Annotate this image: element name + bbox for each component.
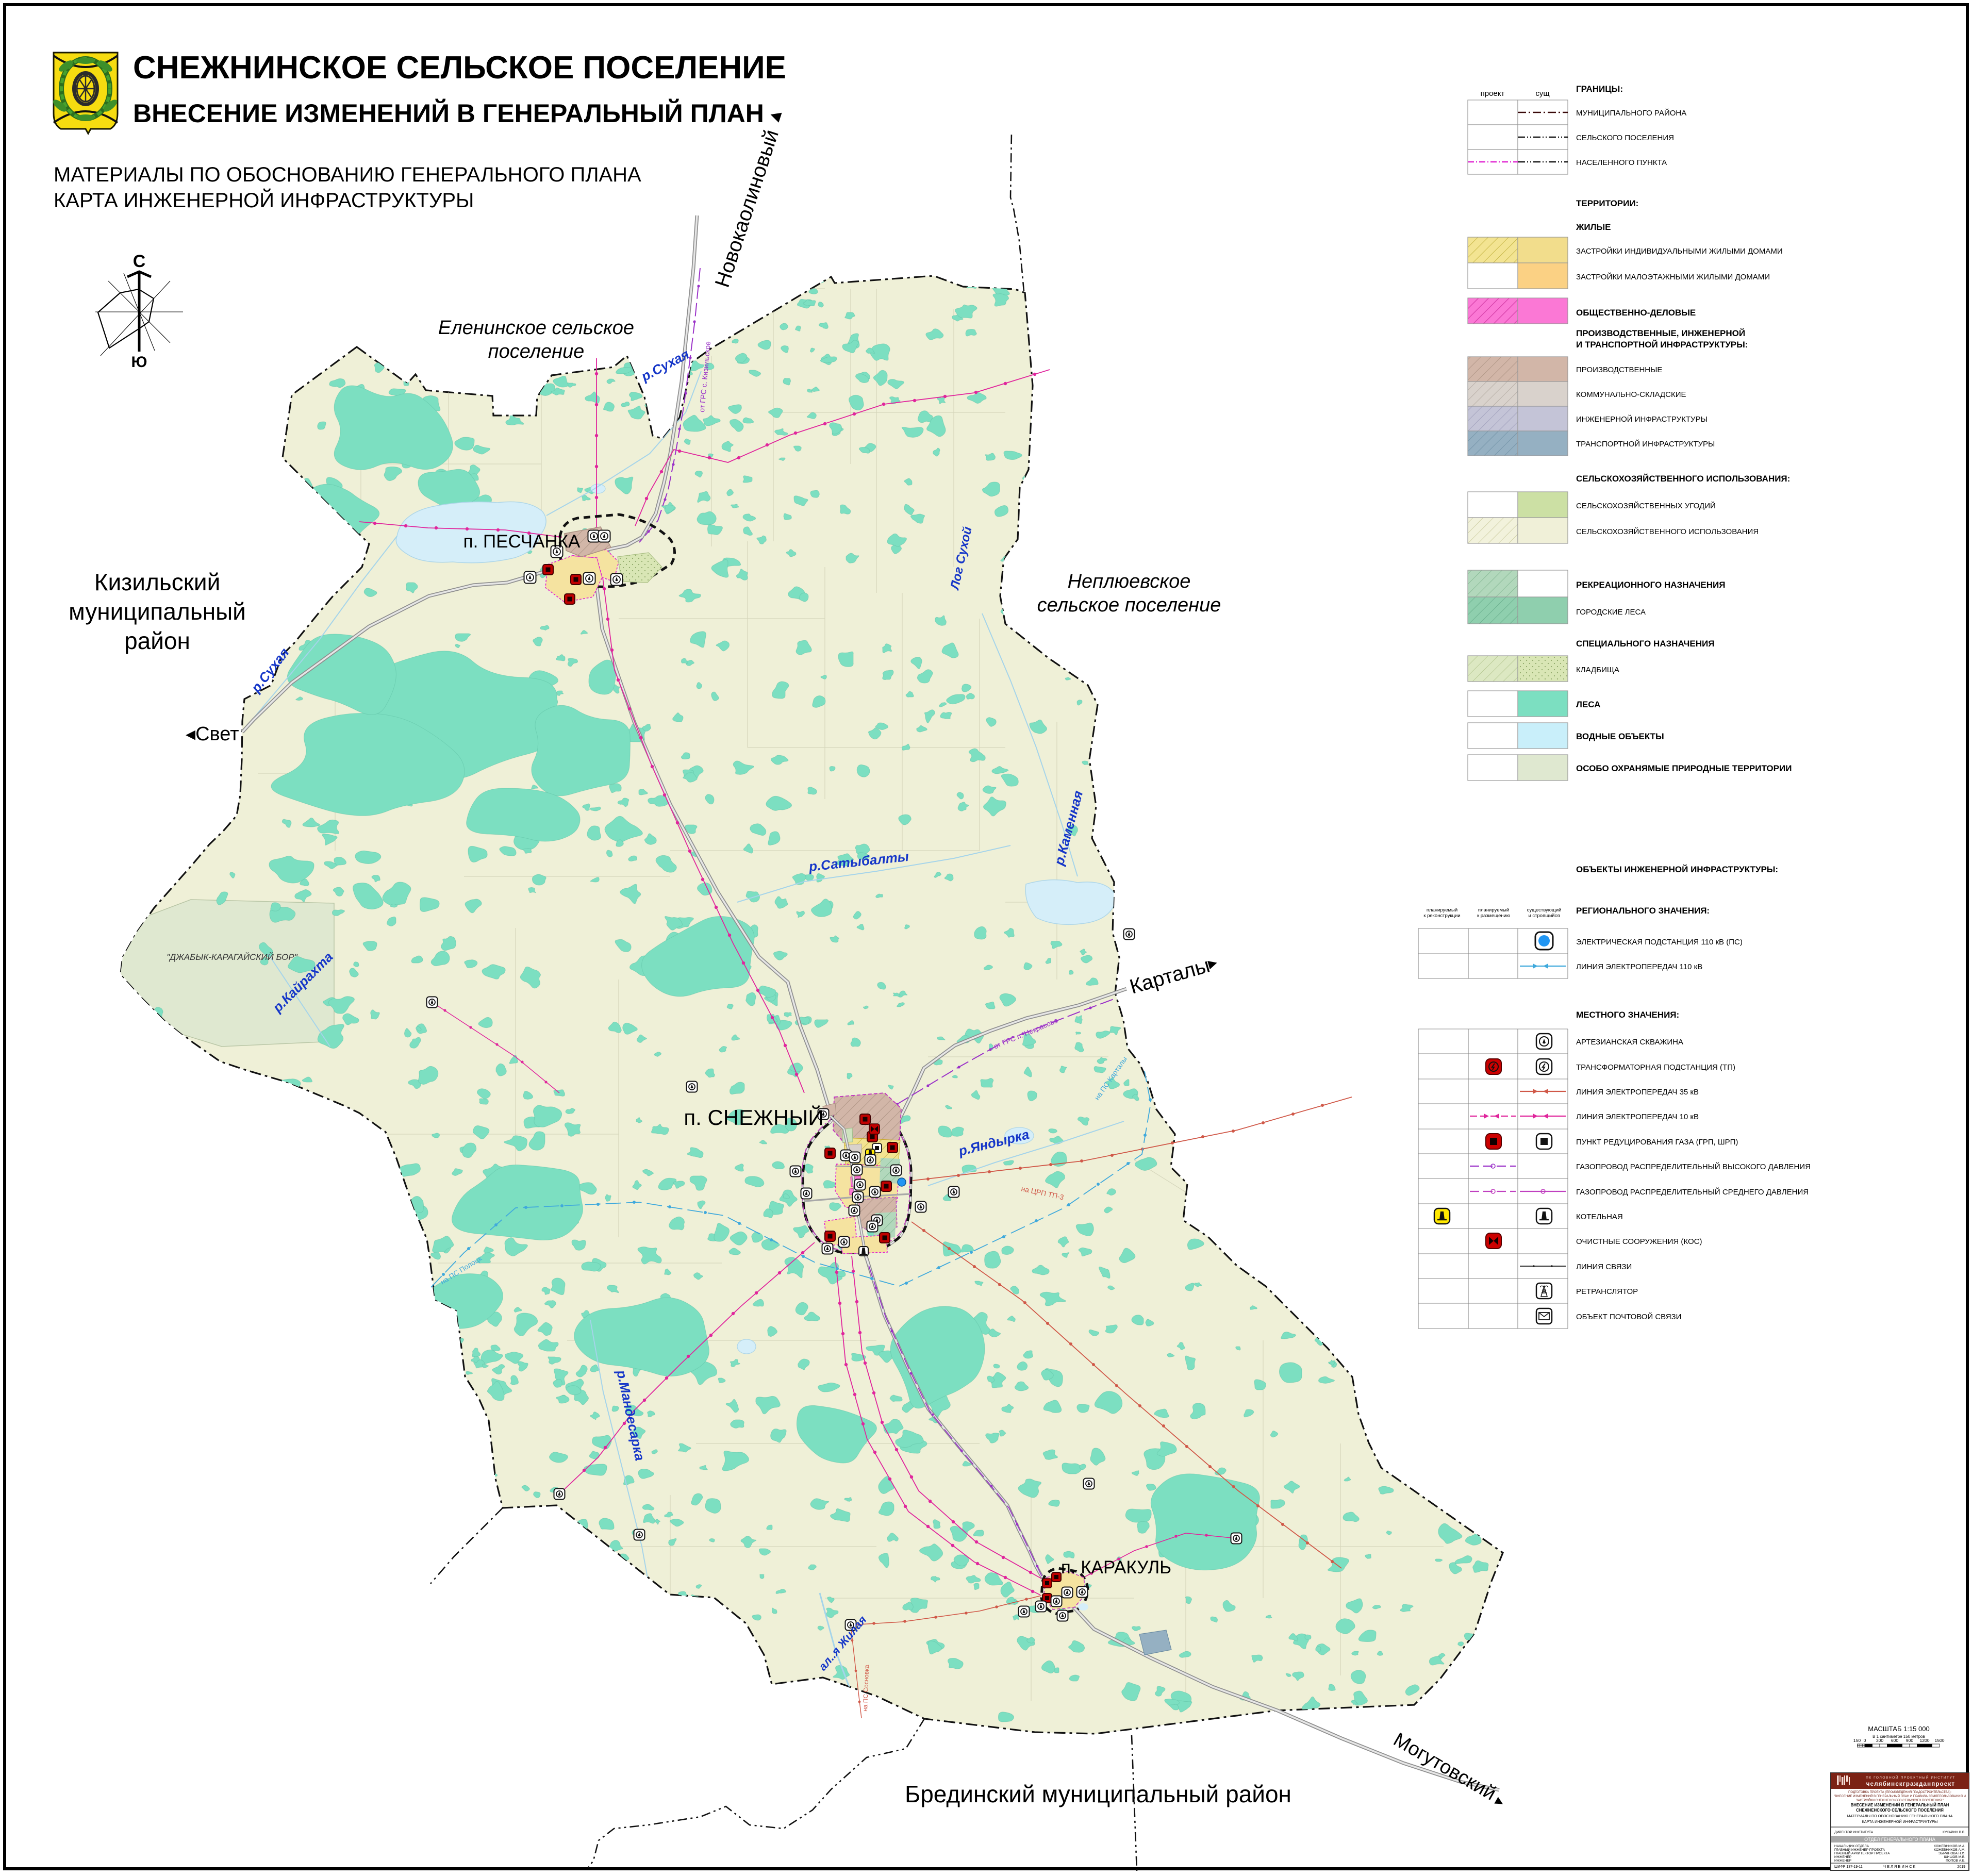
svg-text:Еленинское сельское: Еленинское сельское	[438, 317, 634, 339]
svg-text:ОСОБО ОХРАНЯМЫЕ ПРИРОДНЫЕ ТЕРР: ОСОБО ОХРАНЯМЫЕ ПРИРОДНЫЕ ТЕРРИТОРИИ	[1576, 763, 1792, 773]
svg-text:ИНЖЕНЕРНОЙ ИНФРАСТРУКТУРЫ: ИНЖЕНЕРНОЙ ИНФРАСТРУКТУРЫ	[1576, 414, 1708, 424]
svg-text:1200: 1200	[1920, 1738, 1930, 1743]
svg-text:СЕЛЬСКОГО ПОСЕЛЕНИЯ: СЕЛЬСКОГО ПОСЕЛЕНИЯ	[1576, 134, 1674, 142]
svg-text:ГЛАВНЫЙ ИНЖЕНЕР ПРОЕКТА: ГЛАВНЫЙ ИНЖЕНЕР ПРОЕКТА	[1834, 1847, 1885, 1852]
svg-text:1500: 1500	[1935, 1738, 1945, 1743]
svg-text:к размещению: к размещению	[1477, 913, 1510, 919]
svg-text:МАТЕРИАЛЫ ПО ОБОСНОВАНИЮ ГЕНЕР: МАТЕРИАЛЫ ПО ОБОСНОВАНИЮ ГЕНЕРАЛЬНОГО ПЛ…	[54, 163, 641, 186]
svg-text:МЕСТНОГО ЗНАЧЕНИЯ:: МЕСТНОГО ЗНАЧЕНИЯ:	[1576, 1010, 1679, 1020]
svg-text:ОТДЕЛ ГЕНЕРАЛЬНОГО ПЛАНА: ОТДЕЛ ГЕНЕРАЛЬНОГО ПЛАНА	[1864, 1837, 1935, 1842]
svg-text:"ВНЕСЕНИЕ ИЗМЕНЕНИЙ В ГЕНЕРАЛЬ: "ВНЕСЕНИЕ ИЗМЕНЕНИЙ В ГЕНЕРАЛЬНЫЙ ПЛАН И…	[1834, 1794, 1966, 1798]
svg-text:КЛАДБИЩА: КЛАДБИЩА	[1576, 666, 1619, 674]
svg-text:планируемый: планируемый	[1427, 907, 1457, 913]
svg-text:ВОДНЫЕ ОБЪЕКТЫ: ВОДНЫЕ ОБЪЕКТЫ	[1576, 732, 1664, 741]
svg-text:муниципальный: муниципальный	[69, 598, 246, 625]
svg-text:ЧЕЛЯБИНСК: ЧЕЛЯБИНСК	[1883, 1864, 1916, 1869]
svg-text:МУНИЦИПАЛЬНОГО РАЙОНА: МУНИЦИПАЛЬНОГО РАЙОНА	[1576, 108, 1686, 118]
svg-text:КОЖЕВНИКОВ А.М.: КОЖЕВНИКОВ А.М.	[1934, 1848, 1965, 1852]
svg-text:ВНЕСЕНИЕ ИЗМЕНЕНИЙ В ГЕНЕРАЛЬН: ВНЕСЕНИЕ ИЗМЕНЕНИЙ В ГЕНЕРАЛЬНЫЙ ПЛАН	[133, 98, 764, 128]
svg-text:"ДЖАБЫК-КАРАГАЙСКИЙ БОР": "ДЖАБЫК-КАРАГАЙСКИЙ БОР"	[167, 952, 297, 962]
svg-text:ЛИНИЯ СВЯЗИ: ЛИНИЯ СВЯЗИ	[1576, 1263, 1632, 1271]
svg-text:ОБЪЕКТ ПОЧТОВОЙ СВЯЗИ: ОБЪЕКТ ПОЧТОВОЙ СВЯЗИ	[1576, 1312, 1681, 1321]
svg-text:ПОДГОТОВКА ПРОЕКТА (ПРОИЗВЕДЕН: ПОДГОТОВКА ПРОЕКТА (ПРОИЗВЕДЕНИЯ ГРАДОСТ…	[1848, 1791, 1951, 1794]
svg-text:п. СНЕЖНЫЙ: п. СНЕЖНЫЙ	[684, 1105, 823, 1130]
svg-text:КОЖЕВНИКОВ М.А.: КОЖЕВНИКОВ М.А.	[1934, 1845, 1965, 1848]
svg-text:СЕЛЬСКОХОЗЯЙСТВЕННОГО ИСПОЛЬЗО: СЕЛЬСКОХОЗЯЙСТВЕННОГО ИСПОЛЬЗОВАНИЯ	[1576, 527, 1759, 536]
svg-text:ПУНКТ РЕДУЦИРОВАНИЯ ГАЗА (ГРП,: ПУНКТ РЕДУЦИРОВАНИЯ ГАЗА (ГРП, ШРП)	[1576, 1138, 1738, 1147]
svg-text:ВНЕСЕНИЕ ИЗМЕНЕНИЙ В ГЕНЕРАЛЬН: ВНЕСЕНИЕ ИЗМЕНЕНИЙ В ГЕНЕРАЛЬНЫЙ ПЛАН	[1851, 1803, 1949, 1807]
svg-text:СНЕЖНЕНСКОГО СЕЛЬСКОГО ПОСЕЛЕН: СНЕЖНЕНСКОГО СЕЛЬСКОГО ПОСЕЛЕНИЯ	[1856, 1808, 1944, 1813]
svg-text:300: 300	[1876, 1738, 1883, 1743]
svg-text:СПЕЦИАЛЬНОГО НАЗНАЧЕНИЯ: СПЕЦИАЛЬНОГО НАЗНАЧЕНИЯ	[1576, 639, 1714, 649]
svg-text:ЗАСТРОЙКИ МАЛОЭТАЖНЫМИ ЖИЛЫМИ: ЗАСТРОЙКИ МАЛОЭТАЖНЫМИ ЖИЛЫМИ ДОМАМИ	[1576, 272, 1770, 281]
svg-text:ЛИНИЯ ЭЛЕКТРОПЕРЕДАЧ 35 кВ: ЛИНИЯ ЭЛЕКТРОПЕРЕДАЧ 35 кВ	[1576, 1088, 1699, 1097]
svg-text:СЕЛЬСКОХОЗЯЙСТВЕННЫХ УГОДИЙ: СЕЛЬСКОХОЗЯЙСТВЕННЫХ УГОДИЙ	[1576, 501, 1716, 510]
svg-text:ГАЗОПРОВОД РАСПРЕДЕЛИТЕЛЬНЫЙ С: ГАЗОПРОВОД РАСПРЕДЕЛИТЕЛЬНЫЙ СРЕДНЕГО ДА…	[1576, 1187, 1809, 1197]
svg-text:ЖИЛЫЕ: ЖИЛЫЕ	[1576, 222, 1611, 232]
svg-text:планируемый: планируемый	[1478, 907, 1509, 913]
svg-text:Ю: Ю	[131, 354, 147, 371]
svg-text:ОЧИСТНЫЕ СООРУЖЕНИЯ (КОС): ОЧИСТНЫЕ СООРУЖЕНИЯ (КОС)	[1576, 1237, 1702, 1246]
svg-text:существующий: существующий	[1527, 907, 1562, 913]
svg-text:ШИШОВ М.В.: ШИШОВ М.В.	[1944, 1855, 1965, 1859]
svg-text:ТРАНСФОРМАТОРНАЯ ПОДСТАНЦИЯ (: ТРАНСФОРМАТОРНАЯ ПОДСТАНЦИЯ (ТП)	[1576, 1063, 1735, 1072]
svg-text:сельское поселение: сельское поселение	[1037, 594, 1221, 616]
svg-text:п. ПЕСЧАНКА: п. ПЕСЧАНКА	[463, 532, 581, 552]
svg-text:КАРТА ИНЖЕНЕРНОЙ ИНФРАСТРУКТУР: КАРТА ИНЖЕНЕРНОЙ ИНФРАСТРУКТУРЫ	[54, 188, 474, 212]
svg-text:НАСЕЛЕННОГО ПУНКТА: НАСЕЛЕННОГО ПУНКТА	[1576, 158, 1667, 167]
svg-text:600: 600	[1891, 1738, 1898, 1743]
svg-text:КАРТА ИНЖЕНЕРНОЙ ИНФРАСТРУКТУР: КАРТА ИНЖЕНЕРНОЙ ИНФРАСТРУКТУРЫ	[1862, 1819, 1938, 1824]
svg-text:ЛЕСА: ЛЕСА	[1576, 700, 1600, 709]
svg-text:ЗЫРЯНОВА Н.Ф.: ЗЫРЯНОВА Н.Ф.	[1938, 1852, 1965, 1855]
svg-text:КОММУНАЛЬНО-СКЛАДСКИЕ: КОММУНАЛЬНО-СКЛАДСКИЕ	[1576, 390, 1686, 399]
svg-text:900: 900	[1906, 1738, 1913, 1743]
svg-text:◂Свет: ◂Свет	[186, 723, 239, 745]
svg-text:МАСШТАБ 1:15 000: МАСШТАБ 1:15 000	[1868, 1725, 1929, 1733]
svg-text:РЕГИОНАЛЬНОГО ЗНАЧЕНИЯ:: РЕГИОНАЛЬНОГО ЗНАЧЕНИЯ:	[1576, 906, 1710, 916]
svg-text:проект: проект	[1481, 89, 1505, 98]
svg-text:ГЛАВНЫЙ АРХИТЕКТОР ПРОЕКТА: ГЛАВНЫЙ АРХИТЕКТОР ПРОЕКТА	[1834, 1851, 1890, 1855]
svg-text:ГАЗОПРОВОД РАСПРЕДЕЛИТЕЛЬНЫЙ В: ГАЗОПРОВОД РАСПРЕДЕЛИТЕЛЬНЫЙ ВЫСОКОГО ДА…	[1576, 1162, 1811, 1171]
svg-text:РЕКРЕАЦИОННОГО НАЗНАЧЕНИЯ: РЕКРЕАЦИОННОГО НАЗНАЧЕНИЯ	[1576, 580, 1725, 590]
svg-text:ЛИНИЯ ЭЛЕКТРОПЕРЕДАЧ 110 кВ: ЛИНИЯ ЭЛЕКТРОПЕРЕДАЧ 110 кВ	[1576, 962, 1702, 971]
svg-text:ИНЖЕНЕР: ИНЖЕНЕР	[1834, 1859, 1851, 1863]
svg-text:ПРОИЗВОДСТВЕННЫЕ: ПРОИЗВОДСТВЕННЫЕ	[1576, 366, 1662, 374]
svg-text:0: 0	[1864, 1738, 1866, 1743]
svg-text:ИНЖЕНЕР: ИНЖЕНЕР	[1834, 1855, 1851, 1859]
svg-text:ПК ГОЛОВНОЙ ПРОЕКТНЫЙ ИНСТИТУТ: ПК ГОЛОВНОЙ ПРОЕКТНЫЙ ИНСТИТУТ	[1866, 1775, 1956, 1780]
svg-text:ДИРЕКТОР ИНСТИТУТА: ДИРЕКТОР ИНСТИТУТА	[1834, 1831, 1874, 1834]
svg-text:ОБЩЕСТВЕННО-ДЕЛОВЫЕ: ОБЩЕСТВЕННО-ДЕЛОВЫЕ	[1576, 308, 1696, 318]
svg-text:ЗАСТРОЙКИ СНЕЖНЕНСКОГО СЕЛЬСКО: ЗАСТРОЙКИ СНЕЖНЕНСКОГО СЕЛЬСКОГО ПОСЕЛЕН…	[1856, 1798, 1944, 1802]
svg-text:НАЧАЛЬНИК ОТДЕЛА: НАЧАЛЬНИК ОТДЕЛА	[1834, 1845, 1869, 1848]
svg-text:КУКАРИН В.В.: КУКАРИН В.В.	[1943, 1831, 1965, 1834]
svg-text:Брединский муниципальный район: Брединский муниципальный район	[905, 1781, 1291, 1807]
svg-text:СНЕЖНИНСКОЕ СЕЛЬСКОЕ ПОСЕЛЕНИЕ: СНЕЖНИНСКОЕ СЕЛЬСКОЕ ПОСЕЛЕНИЕ	[133, 50, 786, 86]
svg-text:АРТЕЗИАНСКАЯ СКВАЖИНА: АРТЕЗИАНСКАЯ СКВАЖИНА	[1576, 1038, 1683, 1047]
svg-text:ШИФР 137-19-11: ШИФР 137-19-11	[1834, 1865, 1863, 1869]
svg-text:ЭЛЕКТРИЧЕСКАЯ ПОДСТАНЦИЯ 110 к: ЭЛЕКТРИЧЕСКАЯ ПОДСТАНЦИЯ 110 кВ (ПС)	[1576, 938, 1743, 947]
svg-text:КОТЕЛЬНАЯ: КОТЕЛЬНАЯ	[1576, 1213, 1623, 1221]
svg-text:ЛИНИЯ ЭЛЕКТРОПЕРЕДАЧ 10 кВ: ЛИНИЯ ЭЛЕКТРОПЕРЕДАЧ 10 кВ	[1576, 1113, 1699, 1121]
svg-text:и строящийся: и строящийся	[1528, 913, 1560, 919]
svg-text:район: район	[124, 627, 190, 654]
svg-text:ТЕРРИТОРИИ:: ТЕРРИТОРИИ:	[1576, 198, 1638, 208]
svg-text:С: С	[133, 252, 146, 271]
svg-text:сущ: сущ	[1535, 89, 1549, 98]
svg-text:2019: 2019	[1957, 1865, 1965, 1869]
svg-text:челябинскгражданпроект: челябинскгражданпроект	[1866, 1781, 1956, 1787]
svg-text:И ТРАНСПОРТНОЙ ИНФРАСТРУКТУРЫ:: И ТРАНСПОРТНОЙ ИНФРАСТРУКТУРЫ:	[1576, 340, 1748, 350]
svg-text:ПРОИЗВОДСТВЕННЫЕ, ИНЖЕНЕРНОЙ: ПРОИЗВОДСТВЕННЫЕ, ИНЖЕНЕРНОЙ	[1576, 328, 1745, 338]
svg-text:Неплюевское: Неплюевское	[1068, 571, 1191, 592]
svg-text:МАТЕРИАЛЫ ПО ОБОСНОВАНИЮ ГЕНЕР: МАТЕРИАЛЫ ПО ОБОСНОВАНИЮ ГЕНЕРАЛЬНОГО ПЛ…	[1847, 1814, 1953, 1818]
svg-text:к реконструкции: к реконструкции	[1423, 913, 1460, 919]
svg-text:Кизильский: Кизильский	[94, 569, 221, 595]
svg-text:ОБЪЕКТЫ ИНЖЕНЕРНОЙ ИНФРАСТРУКТ: ОБЪЕКТЫ ИНЖЕНЕРНОЙ ИНФРАСТРУКТУРЫ:	[1576, 865, 1778, 874]
svg-text:ТРАНСПОРТНОЙ ИНФРАСТРУКТУРЫ: ТРАНСПОРТНОЙ ИНФРАСТРУКТУРЫ	[1576, 439, 1715, 449]
svg-text:СЕЛЬСКОХОЗЯЙСТВЕННОГО ИСПОЛЬЗО: СЕЛЬСКОХОЗЯЙСТВЕННОГО ИСПОЛЬЗОВАНИЯ:	[1576, 474, 1790, 484]
svg-text:ПОПОВ А.Е.: ПОПОВ А.Е.	[1946, 1859, 1965, 1863]
svg-text:150: 150	[1853, 1738, 1861, 1743]
svg-text:поселение: поселение	[488, 341, 585, 362]
svg-text:ГОРОДСКИЕ ЛЕСА: ГОРОДСКИЕ ЛЕСА	[1576, 608, 1646, 617]
svg-text:ГРАНИЦЫ:: ГРАНИЦЫ:	[1576, 84, 1623, 94]
svg-text:ЗАСТРОЙКИ ИНДИВИДУАЛЬНЫМИ ЖИЛЫ: ЗАСТРОЙКИ ИНДИВИДУАЛЬНЫМИ ЖИЛЫМИ ДОМАМИ	[1576, 246, 1783, 256]
svg-text:п. КАРАКУЛЬ: п. КАРАКУЛЬ	[1061, 1557, 1171, 1578]
svg-text:РЕТРАНСЛЯТОР: РЕТРАНСЛЯТОР	[1576, 1287, 1638, 1296]
